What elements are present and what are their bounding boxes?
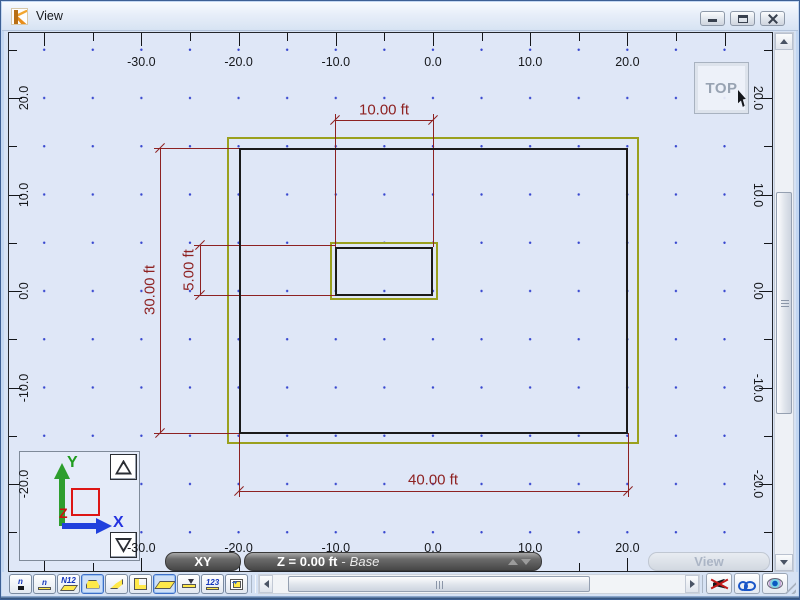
ruler-label: -20.0 bbox=[751, 470, 765, 499]
member-numbers-icon[interactable]: n bbox=[33, 574, 56, 594]
dimension-label[interactable]: 30.00 ft bbox=[142, 265, 159, 315]
toolbar-separator bbox=[251, 575, 256, 593]
x-axis-label: X bbox=[113, 514, 124, 532]
section-labels-icon[interactable]: N12 bbox=[57, 574, 80, 594]
ruler-tick bbox=[336, 33, 337, 46]
scroll-right-button[interactable] bbox=[685, 575, 699, 593]
dimension-line[interactable] bbox=[200, 245, 201, 295]
ruler-label: 20.0 bbox=[615, 541, 639, 555]
dimension-line[interactable] bbox=[239, 491, 628, 492]
extension-line bbox=[154, 148, 239, 149]
ruler-tick bbox=[725, 33, 726, 46]
up-triangle-icon bbox=[115, 460, 132, 475]
glasses-icon bbox=[738, 579, 756, 589]
ruler-tick bbox=[287, 33, 288, 41]
drawing-canvas[interactable]: 10.00 ft 5.00 ft 30.00 ft 40.00 ft TOP Y… bbox=[8, 32, 773, 572]
extension-line bbox=[154, 433, 239, 434]
extension-line bbox=[239, 433, 240, 497]
dimension-label[interactable]: 10.00 ft bbox=[359, 102, 409, 119]
view-orientation-label: TOP bbox=[705, 80, 737, 97]
dimension-line[interactable] bbox=[335, 120, 433, 121]
supports-icon[interactable] bbox=[81, 574, 104, 594]
bottom-toolbar: nnN12123 bbox=[2, 572, 798, 597]
ruler-tick bbox=[9, 532, 17, 533]
ruler-tick bbox=[141, 33, 142, 46]
hide-entities-button[interactable] bbox=[706, 573, 732, 594]
ruler-tick bbox=[676, 33, 677, 41]
layer-down-icon[interactable] bbox=[521, 559, 531, 565]
view-orientation-button[interactable]: TOP bbox=[694, 62, 749, 114]
ruler-label: -20.0 bbox=[224, 55, 253, 69]
axis-orientation-widget: Y X Z bbox=[19, 451, 140, 561]
slab-outline[interactable] bbox=[239, 148, 628, 434]
ruler-tick bbox=[384, 33, 385, 41]
minimize-icon bbox=[708, 19, 717, 22]
ruler-tick bbox=[764, 436, 772, 437]
x-axis-arrow bbox=[62, 523, 98, 529]
ruler-tick bbox=[93, 563, 94, 571]
ruler-tick bbox=[764, 50, 772, 51]
releases-icon[interactable] bbox=[129, 574, 152, 594]
ruler-tick bbox=[579, 563, 580, 571]
ruler-label: 0.0 bbox=[751, 282, 765, 299]
ruler-label: -10.0 bbox=[322, 55, 351, 69]
ruler-tick bbox=[93, 33, 94, 41]
dimension-label[interactable]: 40.00 ft bbox=[408, 472, 458, 489]
ruler-tick bbox=[9, 243, 17, 244]
scroll-down-button[interactable] bbox=[775, 554, 793, 571]
ruler-tick bbox=[579, 33, 580, 41]
view-window: View bbox=[0, 0, 800, 600]
ruler-tick bbox=[433, 33, 434, 46]
extension-line bbox=[628, 433, 629, 497]
ruler-label: -10.0 bbox=[751, 373, 765, 402]
window-title: View bbox=[36, 9, 63, 23]
dimension-line[interactable] bbox=[160, 148, 161, 433]
titlebar: View bbox=[2, 2, 798, 31]
scroll-left-button[interactable] bbox=[259, 575, 273, 593]
ruler-tick bbox=[482, 33, 483, 41]
ruler-label: 20.0 bbox=[751, 86, 765, 110]
plates-icon[interactable] bbox=[105, 574, 128, 594]
ruler-tick bbox=[764, 339, 772, 340]
close-button[interactable] bbox=[760, 11, 785, 26]
dimensions-icon[interactable]: 123 bbox=[201, 574, 224, 594]
minimize-button[interactable] bbox=[700, 11, 725, 26]
ruler-label: 10.0 bbox=[518, 55, 542, 69]
view-glasses-button[interactable] bbox=[734, 573, 760, 594]
right-arrow-icon bbox=[690, 580, 695, 588]
up-arrow-icon bbox=[780, 39, 788, 44]
elevation-pill-button[interactable]: Z = 0.00 ft - Base bbox=[244, 552, 542, 571]
dimension-label[interactable]: 5.00 ft bbox=[181, 249, 198, 291]
ruler-tick bbox=[764, 243, 772, 244]
ruler-label: 10.0 bbox=[17, 182, 31, 206]
ruler-label: 20.0 bbox=[615, 55, 639, 69]
origin-marker bbox=[71, 488, 100, 516]
horizontal-scrollbar[interactable] bbox=[258, 574, 700, 594]
ruler-label: -30.0 bbox=[127, 541, 156, 555]
plane-pill-button[interactable]: XY bbox=[165, 552, 241, 571]
view-pill-button[interactable]: View bbox=[648, 552, 770, 571]
app-icon bbox=[11, 8, 28, 25]
red-x-icon bbox=[710, 578, 729, 590]
ruler-tick bbox=[9, 339, 17, 340]
ruler-label: 0.0 bbox=[424, 55, 441, 69]
horizontal-scrollbar-thumb[interactable] bbox=[288, 576, 590, 592]
ruler-tick bbox=[9, 146, 17, 147]
ruler-tick bbox=[627, 33, 628, 46]
ruler-label: -30.0 bbox=[127, 55, 156, 69]
ruler-tick bbox=[239, 33, 240, 46]
layer-name: Base bbox=[350, 554, 380, 569]
distributed-load-icon[interactable] bbox=[177, 574, 200, 594]
restore-icon bbox=[738, 15, 748, 23]
y-axis-label: Y bbox=[67, 454, 78, 472]
ruler-tick bbox=[530, 33, 531, 46]
vertical-scrollbar-thumb[interactable] bbox=[776, 192, 792, 414]
scroll-up-button[interactable] bbox=[775, 33, 793, 50]
node-numbers-icon[interactable]: n bbox=[9, 574, 32, 594]
ruler-tick bbox=[764, 146, 772, 147]
ruler-tick bbox=[141, 558, 142, 571]
ruler-label: 10.0 bbox=[751, 182, 765, 206]
left-arrow-icon bbox=[264, 580, 269, 588]
eye-icon bbox=[767, 578, 783, 589]
ruler-tick bbox=[9, 436, 17, 437]
ruler-tick bbox=[627, 558, 628, 571]
flip-up-button[interactable] bbox=[110, 454, 137, 480]
ruler-label: 20.0 bbox=[17, 86, 31, 110]
ruler-tick bbox=[9, 50, 17, 51]
ruler-label: -10.0 bbox=[17, 373, 31, 402]
ruler-tick bbox=[190, 33, 191, 41]
z-axis-label: Z bbox=[59, 505, 68, 521]
opening-outline[interactable] bbox=[335, 247, 433, 296]
ruler-tick bbox=[44, 33, 45, 46]
down-arrow-icon bbox=[780, 560, 788, 565]
perspective-eye-button[interactable] bbox=[762, 573, 788, 594]
window-bottom-edge bbox=[1, 596, 799, 599]
ruler-label: 0.0 bbox=[17, 282, 31, 299]
ruler-tick bbox=[764, 532, 772, 533]
ruler-label: -20.0 bbox=[17, 470, 31, 499]
vertical-scrollbar[interactable] bbox=[774, 32, 794, 572]
restore-button[interactable] bbox=[730, 11, 755, 26]
slabs-icon[interactable] bbox=[153, 574, 176, 594]
pan-grid-icon[interactable] bbox=[225, 574, 248, 594]
layer-up-icon[interactable] bbox=[508, 559, 518, 565]
